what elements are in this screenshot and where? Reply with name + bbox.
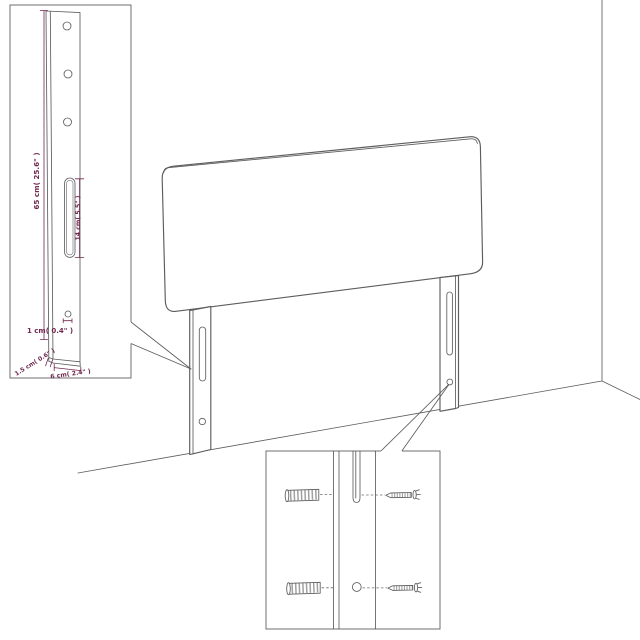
- leg-height-label: 65 cm( 25.6" ): [32, 152, 41, 209]
- mounting-detail-callout: [266, 451, 440, 629]
- diagram-canvas: 65 cm( 25.6" ) 14 cm( 5.5" ) 1 cm( 0.4" …: [0, 0, 640, 640]
- callout-leaders: [131, 322, 449, 451]
- headboard-assembly-diagram: 65 cm( 25.6" ) 14 cm( 5.5" ) 1 cm( 0.4" …: [0, 0, 640, 640]
- leg-callout-leader-line: [131, 344, 191, 370]
- left-leg: [190, 307, 211, 455]
- slot-length-label: 14 cm( 5.5" ): [75, 195, 82, 240]
- leg-detail-callout: 65 cm( 25.6" ) 14 cm( 5.5" ) 1 cm( 0.4" …: [10, 5, 131, 381]
- floor-line-right: [602, 381, 640, 400]
- headboard: [162, 137, 482, 312]
- leg-detail-inset-border: [10, 5, 131, 378]
- mount-callout-leader-line: [402, 385, 449, 451]
- right-leg: [440, 276, 459, 412]
- hole-diameter-label: 1 cm( 0.4" ): [27, 327, 73, 335]
- headboard-panel: [162, 137, 482, 312]
- leg-callout-leader-line: [131, 322, 191, 369]
